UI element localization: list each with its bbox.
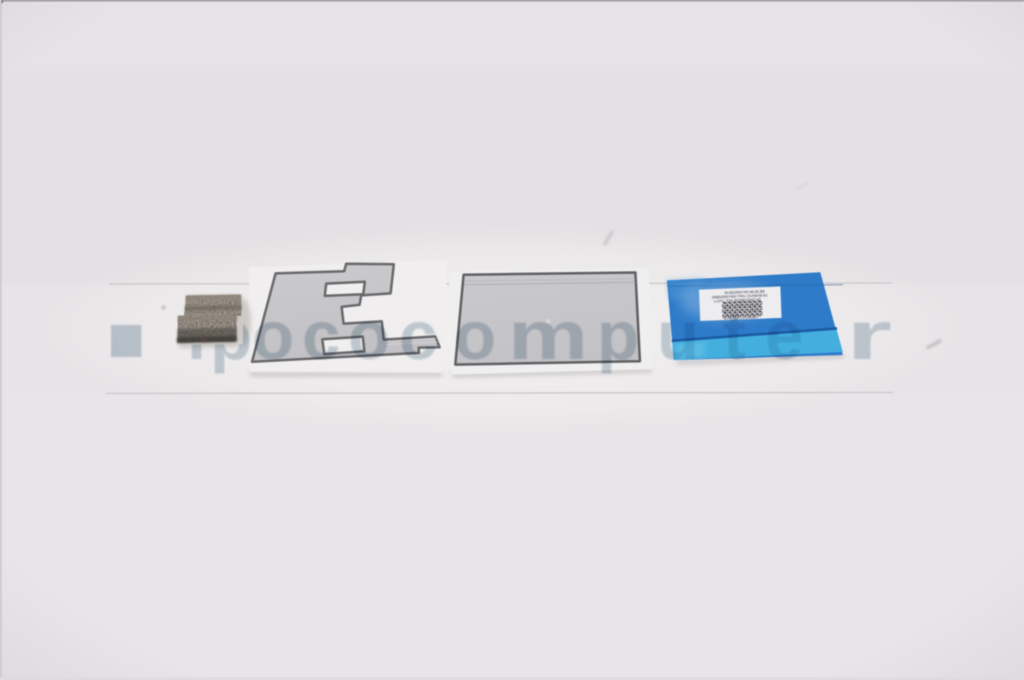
- svg-text:m: m: [508, 297, 588, 374]
- svg-text:r: r: [846, 297, 892, 374]
